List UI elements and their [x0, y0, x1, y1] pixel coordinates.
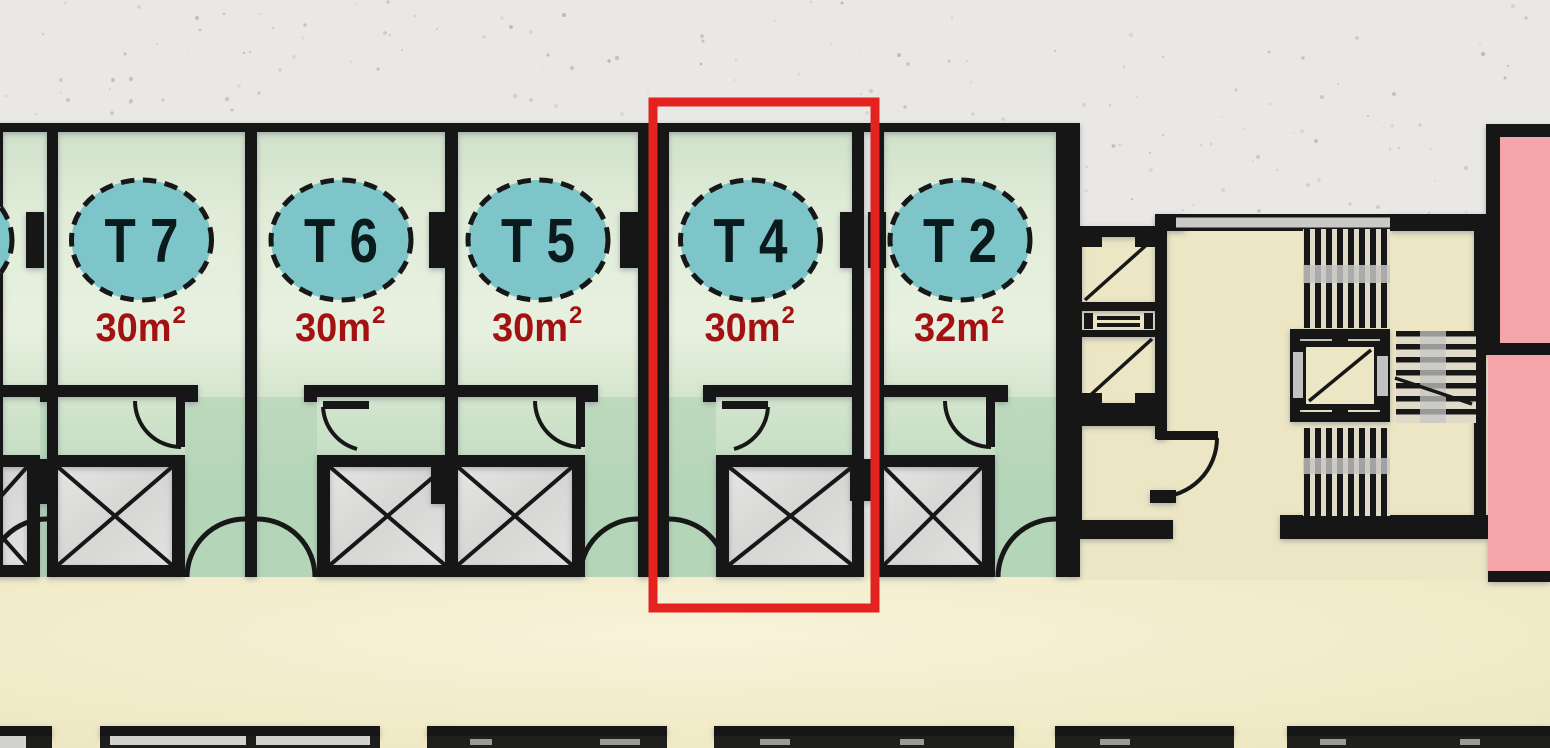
svg-text:2: 2	[782, 302, 795, 329]
svg-text:30m: 30m	[492, 306, 568, 350]
svg-text:2: 2	[173, 302, 186, 329]
svg-text:32m: 32m	[914, 306, 990, 350]
svg-text:30m: 30m	[295, 306, 371, 350]
svg-text:30m: 30m	[705, 306, 781, 350]
svg-text:T 4: T 4	[714, 207, 788, 276]
svg-text:2: 2	[372, 302, 385, 329]
svg-text:T 6: T 6	[304, 207, 378, 276]
svg-text:T 5: T 5	[501, 207, 575, 276]
svg-text:30m: 30m	[96, 306, 172, 350]
svg-text:T 2: T 2	[923, 207, 997, 276]
svg-text:2: 2	[991, 302, 1004, 329]
svg-text:T 7: T 7	[105, 207, 179, 276]
svg-text:2: 2	[569, 302, 582, 329]
